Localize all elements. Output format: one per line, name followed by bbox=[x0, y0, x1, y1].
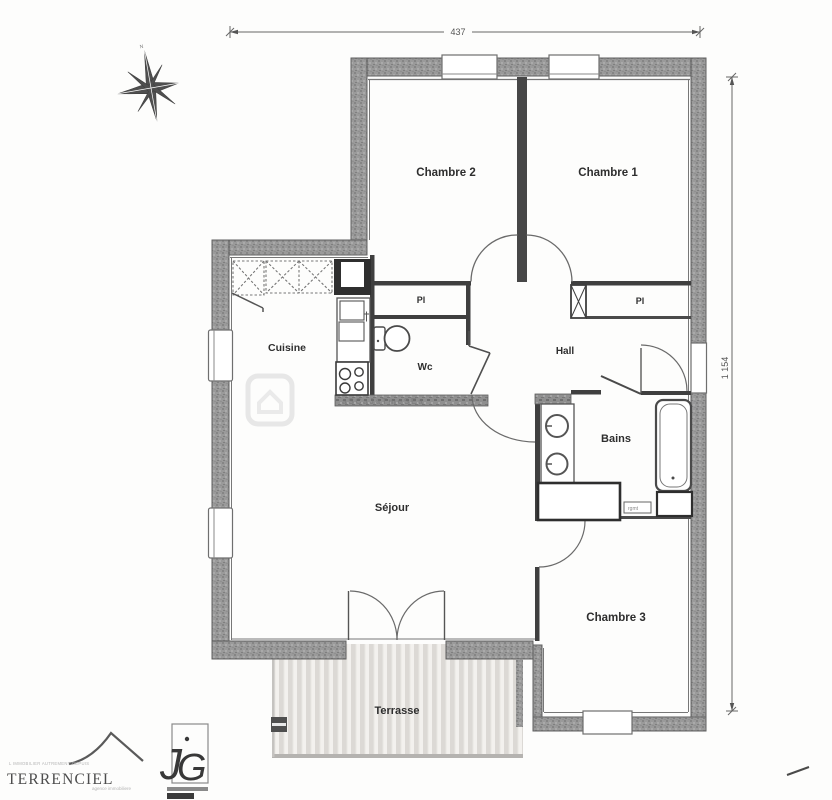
svg-text:Hall: Hall bbox=[556, 346, 575, 357]
svg-text:Chambre 2: Chambre 2 bbox=[416, 167, 475, 179]
svg-text:Séjour: Séjour bbox=[375, 502, 410, 514]
svg-text:L IMMOBILIER AUTREMENT DEPUIS: L IMMOBILIER AUTREMENT DEPUIS bbox=[9, 761, 89, 766]
svg-text:rgmt: rgmt bbox=[628, 506, 639, 512]
svg-text:Pl: Pl bbox=[417, 295, 426, 305]
svg-text:Chambre 3: Chambre 3 bbox=[586, 612, 645, 624]
svg-text:Pl: Pl bbox=[636, 296, 645, 306]
svg-text:G: G bbox=[177, 747, 207, 789]
svg-text:Chambre 1: Chambre 1 bbox=[578, 167, 638, 179]
svg-text:437: 437 bbox=[450, 27, 465, 37]
svg-text:Bains: Bains bbox=[601, 433, 631, 445]
svg-text:aSCaJaTmeSEa: aSCaJaTmeSEa bbox=[342, 396, 424, 406]
svg-text:Wc: Wc bbox=[418, 362, 433, 373]
svg-text:Terrasse: Terrasse bbox=[374, 705, 419, 717]
svg-text:1 154: 1 154 bbox=[720, 357, 730, 380]
svg-text:agence immobiliere: agence immobiliere bbox=[92, 786, 132, 791]
svg-text:Cuisine: Cuisine bbox=[268, 342, 306, 354]
